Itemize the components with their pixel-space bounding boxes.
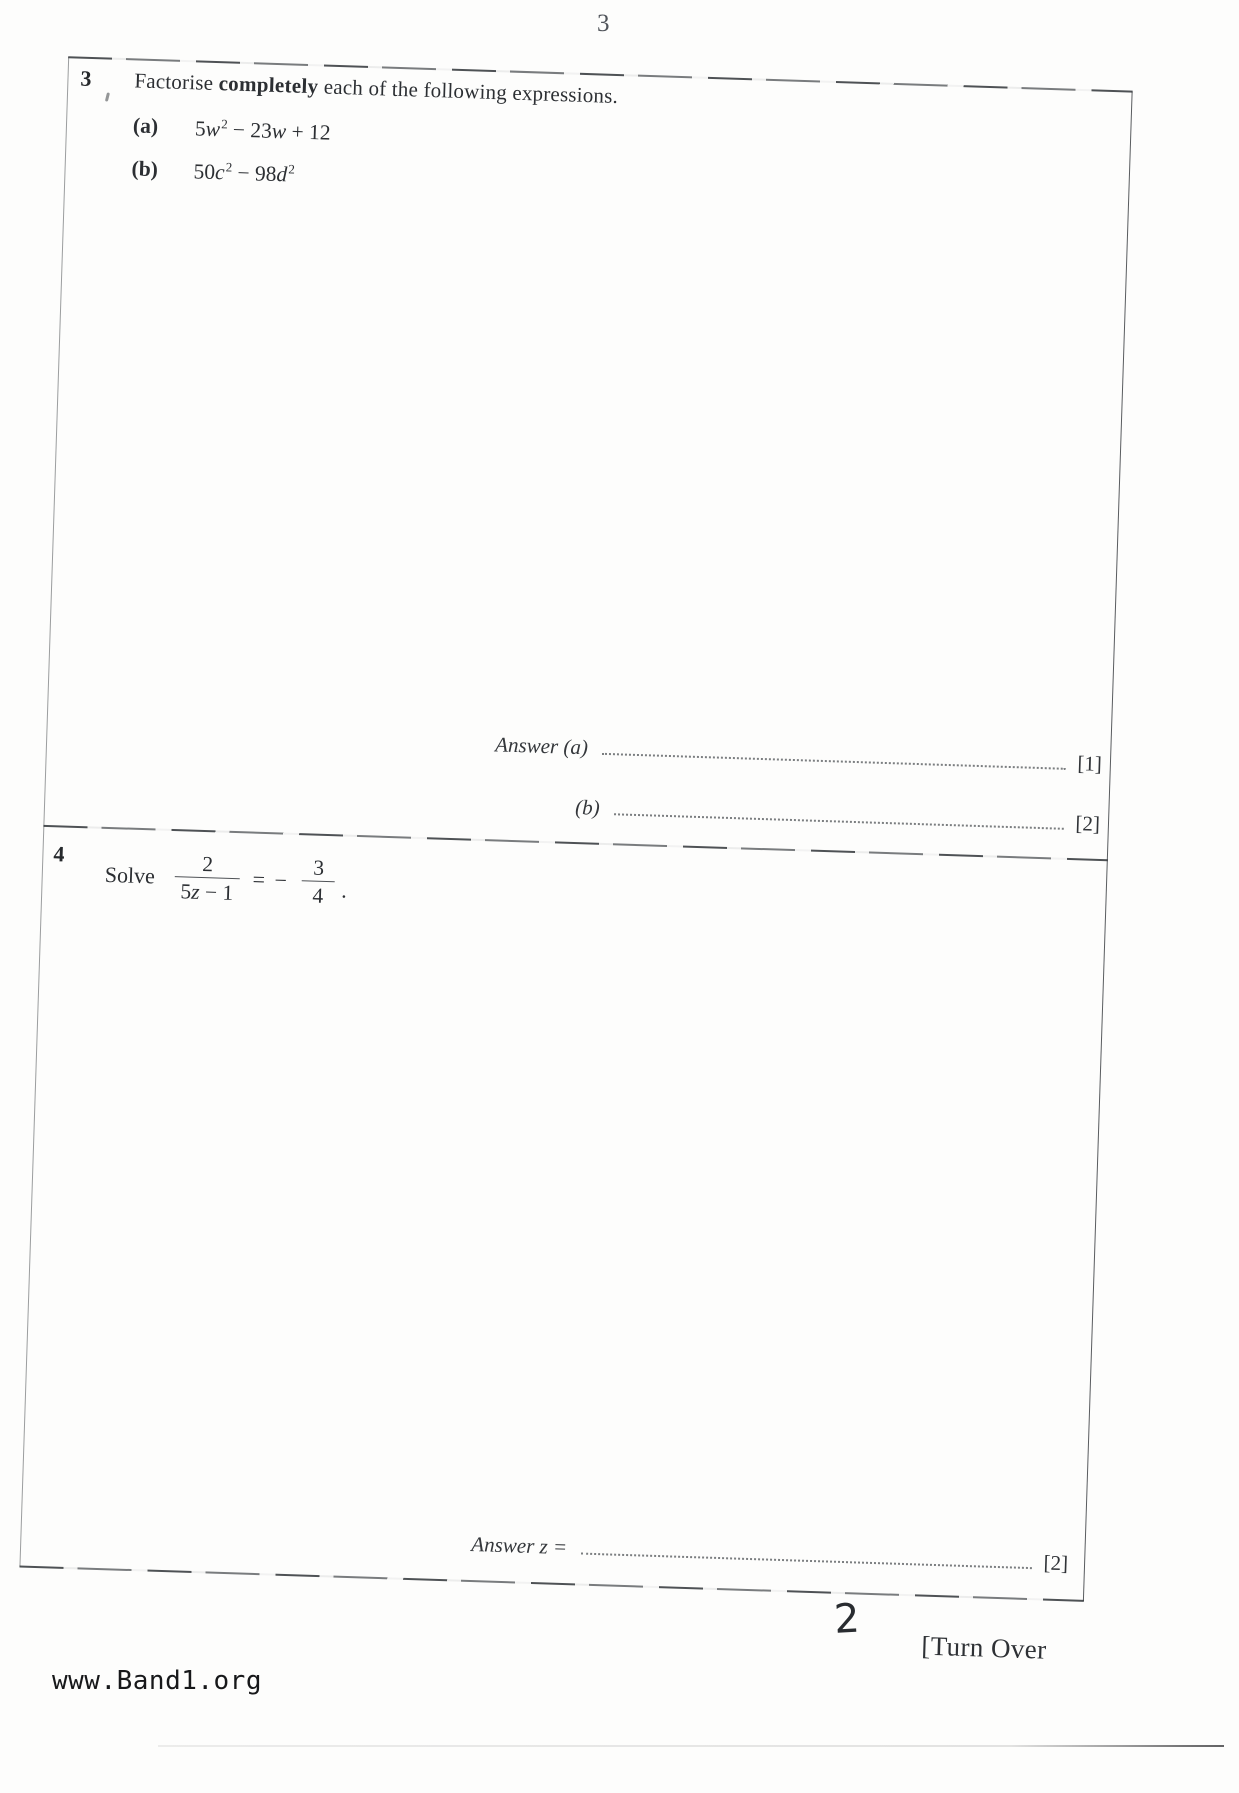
watermark-url: www.Band1.org: [52, 1666, 262, 1696]
part-a-label: (a): [133, 113, 196, 141]
answer-line-b: (b) [2]: [575, 786, 1101, 837]
question-4-verb: Solve: [104, 862, 155, 890]
fraction-rhs-denominator: 4: [301, 880, 335, 909]
scanned-exam-page: 3 3 Factorise completely each of the fol…: [0, 0, 1239, 1754]
part-b-label: (b): [131, 156, 194, 184]
part-b-expression: 50c2 − 98d2: [193, 158, 295, 187]
handwritten-score: 2: [833, 1596, 861, 1643]
marks-b: [2]: [1075, 811, 1100, 837]
part-a-expression: 5w2 − 23w + 12: [195, 115, 331, 145]
answer-z-label: Answer z =: [471, 1532, 568, 1560]
question-4-number: 4: [53, 841, 65, 867]
equals-sign: = −: [252, 867, 289, 894]
fraction-lhs: 2 5z − 1: [174, 851, 240, 906]
turn-over-label: [Turn Over: [921, 1631, 1047, 1666]
marks-z: [2]: [1043, 1551, 1068, 1577]
question-3-prompt: Factorise completely each of the followi…: [134, 68, 618, 109]
answer-line-z: Answer z = [2]: [471, 1523, 1069, 1576]
questions-frame: 3 Factorise completely each of the follo…: [19, 57, 1132, 1601]
scan-edge-artifact: [158, 1745, 1224, 1747]
question-4-body: Solve 2 5z − 1 = − 3 4 .: [103, 831, 348, 927]
fraction-lhs-denominator: 5z − 1: [174, 876, 240, 906]
dotted-answer-line-z: [581, 1553, 1031, 1570]
answer-b-label: (b): [575, 795, 600, 821]
fraction-lhs-numerator: 2: [202, 852, 214, 877]
question-3-number: 3: [80, 66, 92, 92]
fraction-rhs-numerator: 3: [313, 855, 325, 880]
question-3-part-a: (a) 5w2 − 23w + 12: [133, 113, 331, 145]
fraction-rhs: 3 4: [301, 855, 335, 908]
scan-content: 3 Factorise completely each of the follo…: [0, 0, 1238, 1793]
dotted-answer-line-a: [602, 753, 1066, 770]
answer-a-label: Answer (a): [495, 732, 589, 760]
scan-artifact-mark: [105, 92, 110, 101]
question-3-part-b: (b) 50c2 − 98d2: [131, 156, 295, 187]
marks-a: [1]: [1077, 751, 1102, 777]
answer-line-a: Answer (a) [1]: [495, 723, 1103, 777]
dotted-answer-line-b: [614, 813, 1064, 830]
sentence-period: .: [341, 877, 347, 903]
